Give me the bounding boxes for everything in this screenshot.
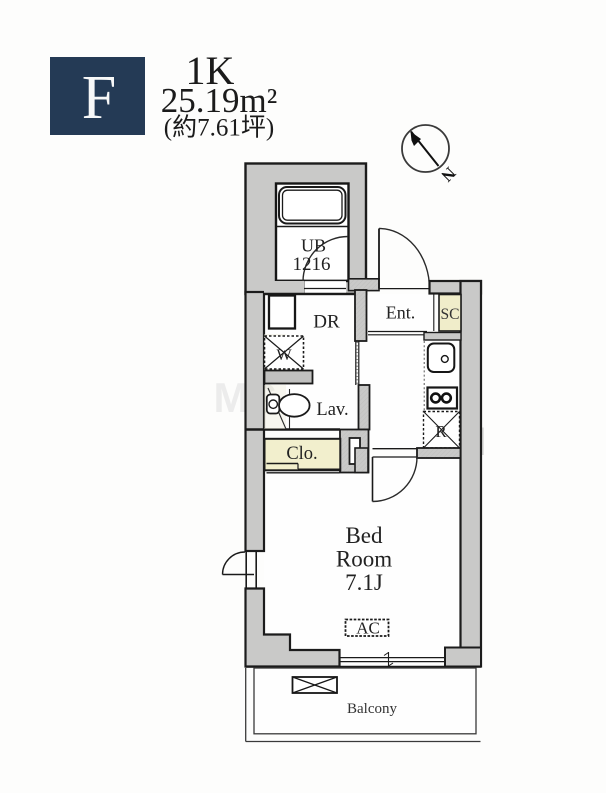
svg-text:Balcony: Balcony bbox=[347, 701, 397, 717]
svg-text:F: F bbox=[82, 64, 116, 132]
svg-text:DR: DR bbox=[313, 312, 340, 333]
svg-text:R: R bbox=[435, 422, 447, 441]
svg-text:1216: 1216 bbox=[293, 254, 331, 275]
svg-text:UB: UB bbox=[301, 236, 326, 256]
svg-text:7.1J: 7.1J bbox=[345, 570, 383, 595]
svg-text:Room: Room bbox=[336, 547, 392, 572]
svg-text:(約7.61坪): (約7.61坪) bbox=[164, 114, 274, 142]
svg-text:Lav.: Lav. bbox=[316, 400, 348, 420]
svg-text:W: W bbox=[276, 347, 292, 364]
svg-text:AC: AC bbox=[356, 619, 380, 638]
svg-text:Ent.: Ent. bbox=[386, 303, 416, 323]
svg-text:SC: SC bbox=[441, 306, 460, 323]
svg-text:Clo.: Clo. bbox=[286, 444, 317, 464]
svg-text:Bed: Bed bbox=[345, 523, 383, 548]
